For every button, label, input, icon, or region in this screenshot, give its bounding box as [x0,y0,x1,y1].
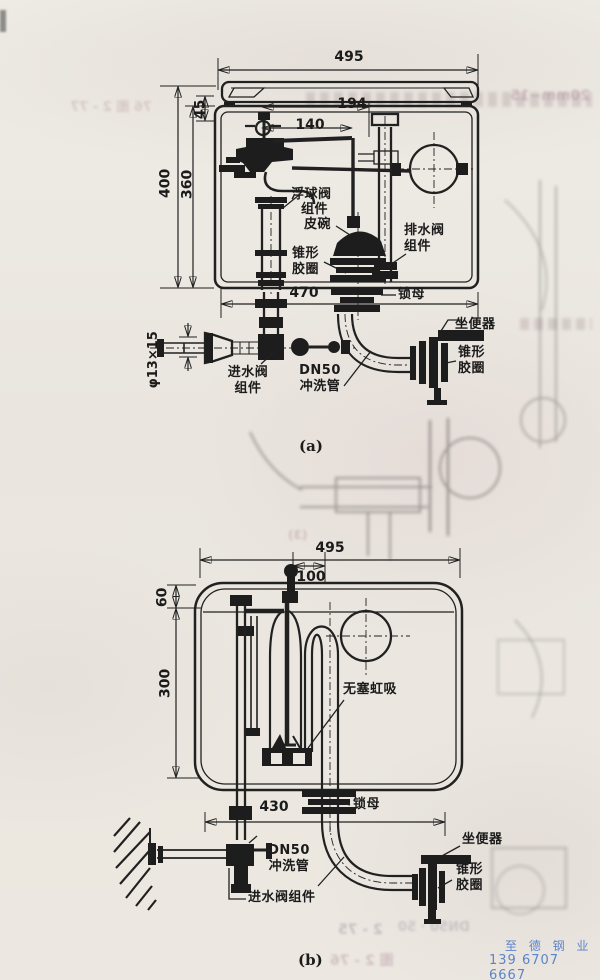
dim-bottom-b: 430 [252,799,296,816]
label-cone-ring2-a: 锥形 胶圈 [458,345,485,376]
dim-width-b: 495 [308,540,352,557]
siphon-assembly-b [262,602,338,832]
cone-coupling-b [412,864,445,924]
label-float-valve-a2: 组件 [301,202,328,218]
dim-height-b: 300 [158,663,175,703]
dim-width-a: 495 [327,49,371,66]
caption-b: (b) [298,951,323,969]
wall-and-supply-pipe-b [114,818,226,910]
lift-rod-b [278,603,296,745]
dim-bottom-a: 470 [282,285,326,302]
dim-arm1-a: 194 [330,96,374,113]
label-locknut-b: 锁母 [353,797,380,813]
label-float-valve-a: 浮球阀 [291,187,332,203]
dim-top-b: 60 [155,582,172,612]
dim-arm2-a: 140 [288,117,332,134]
tank-body-b [195,583,462,790]
label-toilet-a: 坐便器 [455,317,496,333]
caption-a: (a) [299,437,323,455]
dim-lid-a: 45 [193,94,210,124]
label-toilet-b: 坐便器 [462,832,503,848]
watermark-company: 至 德 钢 业 [505,937,592,954]
dim-inlet-pipe-a: φ13×15 [146,324,162,396]
label-inlet-valve-b: 进水阀组件 [248,890,316,906]
cone-coupling-a [410,337,448,405]
label-inlet-valve-a: 进水阀 组件 [220,365,276,396]
technical-drawing [0,0,600,980]
label-locknut-a: 锁母 [398,287,425,303]
watermark-phone: 139 6707 6667 [489,953,600,980]
label-cone-ring-a: 锥形 胶圈 [292,246,319,277]
label-cone-ring-b: 锥形 胶圈 [456,862,483,893]
scanned-page: 20mm−15 76 图 2 - 77 (3) 2 - 75 DN50 · 50… [0,0,600,980]
label-drain-valve-a: 排水阀 组件 [404,223,445,254]
label-flush-pipe-b: DN50 冲洗管 [260,843,318,874]
label-siphon-b: 无塞虹吸 [343,682,397,698]
flush-pipe-b [322,822,416,890]
dim-offset-b: 100 [292,569,330,586]
locknut-stack-b [302,790,356,814]
inlet-riser-pipe-a [255,196,287,334]
locknut-stack-a [331,288,383,312]
label-cup-a: 皮碗 [304,217,331,233]
dim-height-inner-a: 360 [180,164,197,204]
dim-height-outer-a: 400 [158,163,175,203]
label-flush-pipe-a: DN50 冲洗管 [292,363,348,394]
